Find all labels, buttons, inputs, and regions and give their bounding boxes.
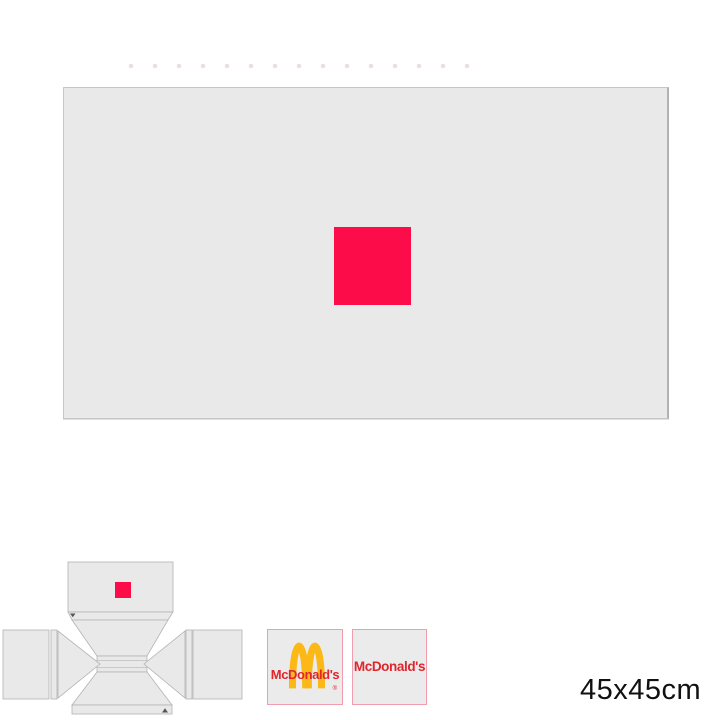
- dieline-bottom-flap: [72, 705, 172, 714]
- preview-artwork-marker: [334, 227, 411, 305]
- brand-wordmark: McDonald's: [354, 659, 425, 674]
- dieline-right-strip: [186, 630, 192, 699]
- dieline-bottom-wall: [72, 672, 172, 705]
- registered-trademark-symbol: ®: [333, 686, 337, 692]
- dieline-left-strip: [51, 630, 57, 699]
- dieline-left-flap: [3, 630, 49, 699]
- texture-swatch-wordmark[interactable]: McDonald's: [352, 629, 427, 705]
- dieline-top-wall: [72, 620, 168, 656]
- dieline-base-panel: [97, 656, 147, 672]
- design-preview-panel: [63, 87, 669, 419]
- dieline-right-flap: [193, 630, 242, 699]
- dieline-lid-rim: [68, 612, 173, 620]
- texture-swatch-arches[interactable]: McDonald's ®: [267, 629, 343, 705]
- registration-dots: [128, 62, 480, 70]
- dimensions-label: 45x45cm: [580, 674, 701, 707]
- dieline-artwork-marker: [115, 582, 131, 598]
- brand-wordmark: McDonald's: [268, 667, 342, 682]
- golden-arches-icon: [285, 639, 329, 692]
- canvas: McDonald's ® McDonald's 45x45cm: [0, 0, 720, 720]
- dieline-template: [0, 555, 250, 720]
